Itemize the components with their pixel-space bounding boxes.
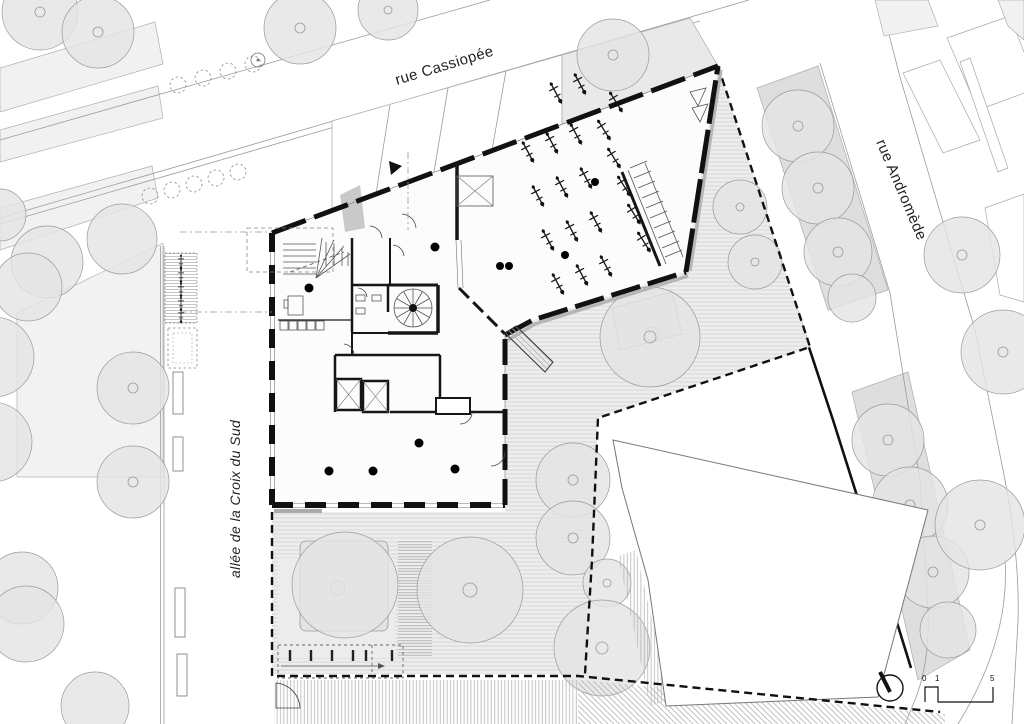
bench <box>177 654 187 696</box>
bench <box>175 588 185 637</box>
young-street-trees <box>142 53 265 204</box>
scale-tick-0: 0 <box>922 674 927 683</box>
bench <box>173 437 183 471</box>
street-label-croix-du-sud: allée de la Croix du Sud <box>227 419 243 578</box>
street-furniture <box>165 253 197 696</box>
north-arrow-icon <box>877 672 903 701</box>
street-label-andromede: rue Andromède <box>872 137 930 243</box>
planter-inner <box>173 333 192 363</box>
bench <box>173 372 183 414</box>
site-plan-drawing: rue Cassiopée rue Andromède allée de la … <box>0 0 1024 724</box>
site-plan: rue Cassiopée rue Andromède allée de la … <box>0 0 1024 724</box>
planter <box>168 328 197 368</box>
scale-tick-1: 1 <box>935 674 940 683</box>
scale-bar: 0 1 5 <box>922 674 995 702</box>
scale-tick-5: 5 <box>990 674 995 683</box>
spiral-stair <box>394 289 432 327</box>
